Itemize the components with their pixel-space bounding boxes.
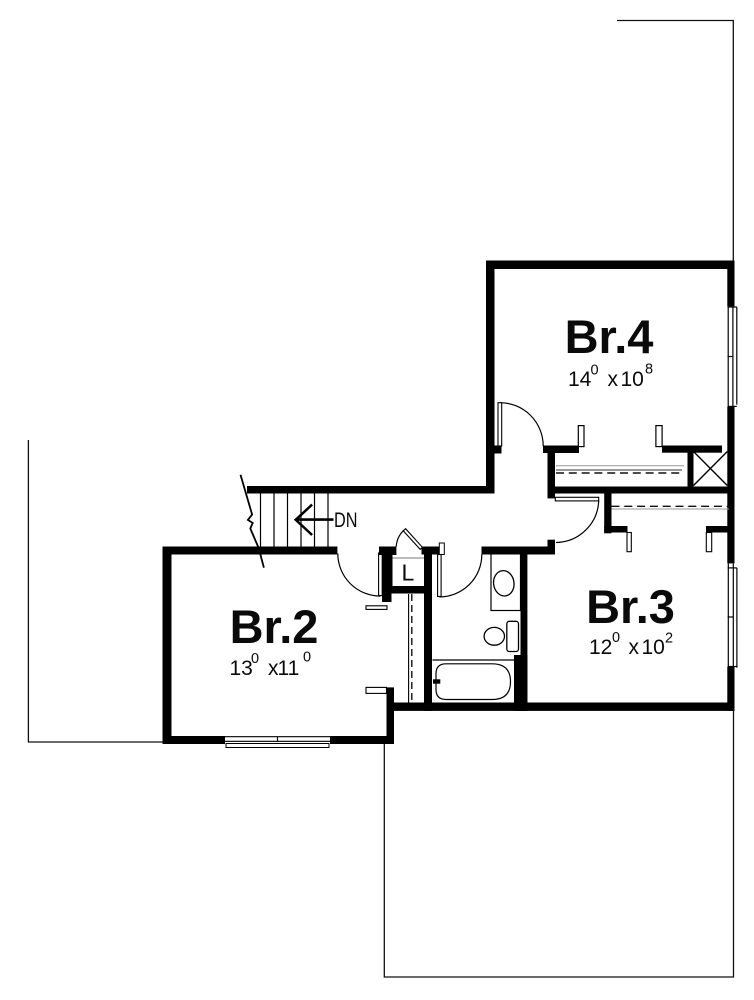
svg-text:x: x bbox=[629, 636, 640, 659]
svg-text:11: 11 bbox=[278, 657, 300, 680]
svg-text:Br.2: Br.2 bbox=[230, 600, 319, 653]
svg-text:Br.3: Br.3 bbox=[586, 580, 675, 633]
svg-text:10: 10 bbox=[642, 636, 665, 659]
svg-text:0: 0 bbox=[303, 650, 311, 666]
svg-text:Br.4: Br.4 bbox=[565, 310, 654, 363]
svg-text:x: x bbox=[608, 368, 619, 391]
svg-text:14: 14 bbox=[568, 368, 592, 391]
svg-text:2: 2 bbox=[665, 631, 673, 647]
svg-text:8: 8 bbox=[645, 362, 653, 378]
svg-text:0: 0 bbox=[612, 630, 620, 646]
svg-text:10: 10 bbox=[621, 368, 644, 391]
svg-text:0: 0 bbox=[251, 651, 259, 667]
svg-text:13: 13 bbox=[230, 657, 253, 680]
svg-text:0: 0 bbox=[591, 363, 599, 379]
svg-text:DN: DN bbox=[334, 509, 358, 532]
svg-text:L: L bbox=[402, 560, 415, 586]
svg-text:12: 12 bbox=[589, 636, 612, 659]
